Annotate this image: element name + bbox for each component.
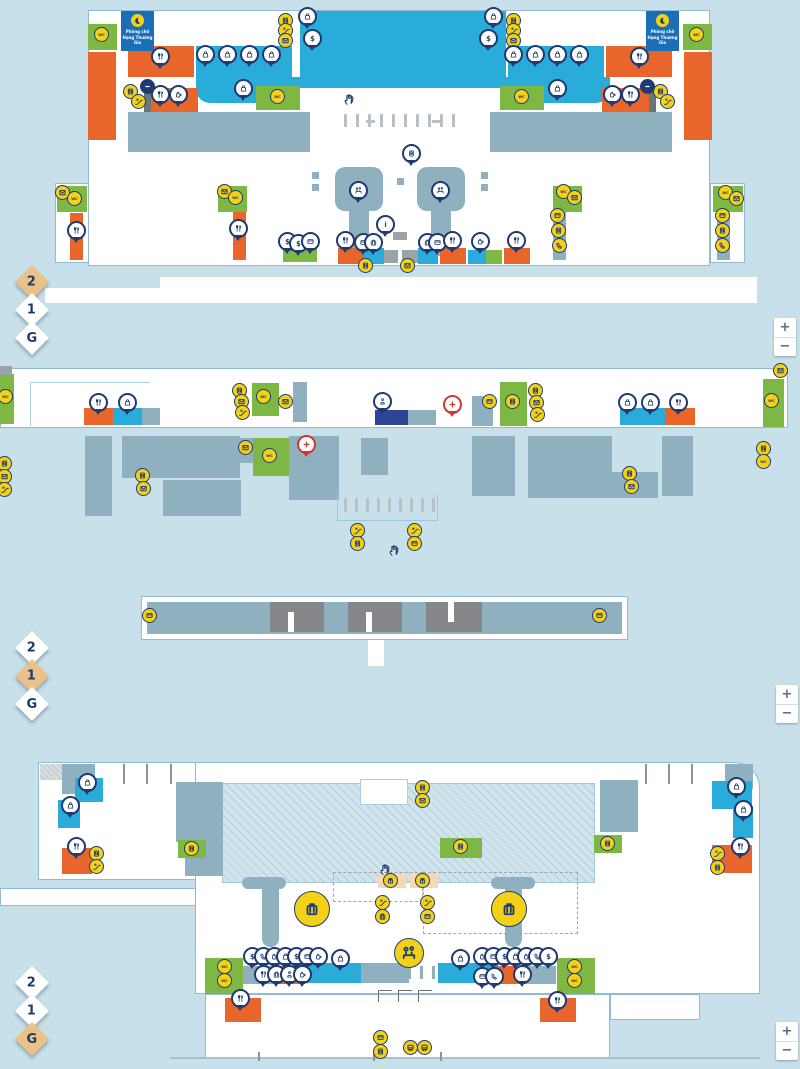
facility-badge-lift[interactable] [184,841,199,856]
poi-pin-bag[interactable] [218,45,237,64]
poi-pin-fork[interactable] [336,231,355,250]
facility-badge-mail[interactable] [278,33,293,48]
map-zone [176,782,223,814]
facility-badge-esc[interactable] [660,94,675,109]
facility-badge-wc[interactable] [764,393,779,408]
facility-badge-lift[interactable] [505,394,520,409]
map-zone [440,1052,442,1061]
facility-badge-mail[interactable] [400,258,415,273]
facility-badge-lug[interactable] [375,909,390,924]
poi-pin-fork[interactable] [67,221,86,240]
facility-badge-mail[interactable] [136,481,151,496]
facility-badge-card[interactable] [482,394,497,409]
poi-pin-fork[interactable] [630,47,649,66]
poi-pin-fork[interactable] [229,219,248,238]
zoom-control: + − [776,1022,798,1060]
map-zone [610,994,700,1020]
poi-pin-fork[interactable] [621,85,640,104]
area-marker-lug[interactable] [491,891,527,927]
map-zone [418,990,432,1002]
poi-pin-pass[interactable] [402,144,421,163]
facility-badge-mail[interactable] [729,191,744,206]
map-zone [691,764,693,784]
facility-badge-lift[interactable] [358,258,373,273]
zoom-control: + − [774,318,796,356]
poi-pin-coffee[interactable] [471,232,490,251]
map-zone [170,764,172,784]
facility-badge-mail[interactable] [624,479,639,494]
facility-badge-wc[interactable] [689,27,704,42]
zoom-out-button[interactable]: − [776,705,798,724]
poi-pin-dollar[interactable] [479,29,498,48]
map-zone [432,966,435,979]
poi-pin-fork[interactable] [151,85,170,104]
terminal-map-viewer: Phòng chờ Hạng Thương Gia Phòng chờ Hạng… [0,0,800,1069]
facility-badge-esc[interactable] [375,895,390,910]
facility-badge-lift[interactable] [551,223,566,238]
facility-badge-wc[interactable] [256,389,271,404]
facility-badge-lift[interactable] [600,836,615,851]
facility-badge-esc[interactable] [530,407,545,422]
zoom-in-button[interactable]: + [776,685,798,704]
floorG-map[interactable] [0,0,800,1069]
facility-badge-wc[interactable] [567,959,582,974]
poi-pin-fork[interactable] [548,991,567,1010]
poi-pin-bag[interactable] [451,949,470,968]
map-zone [384,966,387,979]
floor-button-label: 2 [27,274,36,289]
poi-pin-coffee[interactable] [309,947,328,966]
floor-button-label: G [27,1031,38,1046]
map-zone [222,783,595,883]
poi-pin-dollar[interactable] [539,947,558,966]
lounge-icon [131,14,144,27]
poi-pin-bag[interactable] [196,45,215,64]
map-zone [396,966,399,979]
poi-pin-fork[interactable] [513,965,532,984]
area-marker-lug[interactable] [294,891,330,927]
map-zone [262,889,279,947]
poi-pin-bag[interactable] [234,79,253,98]
zoom-out-button[interactable]: − [774,338,796,357]
poi-pin-fork[interactable] [89,393,108,412]
zoom-in-button[interactable]: + [774,318,796,337]
business-lounge-Phòng chờ Hạng Thương Gia: Phòng chờ Hạng Thương Gia [121,11,154,51]
facility-badge-esc[interactable] [131,94,146,109]
floor-button-label: 2 [27,640,36,655]
facility-badge-card[interactable] [420,909,435,924]
facility-badge-esc[interactable] [235,405,250,420]
map-zone [360,779,408,805]
map-zone [176,814,223,842]
map-zone [420,966,423,979]
floor-button-label: 1 [27,1003,36,1018]
poi-pin-bag[interactable] [618,393,637,412]
poi-pin-fork[interactable] [507,231,526,250]
facility-badge-mail[interactable] [415,793,430,808]
poi-pin-bag[interactable] [727,777,746,796]
facility-badge-wc[interactable] [270,89,285,104]
floor-button-label: G [27,330,38,345]
poi-pin-bag[interactable] [118,393,137,412]
map-zone [123,764,125,784]
facility-badge-wc[interactable] [756,454,771,469]
facility-badge-wc[interactable] [67,191,82,206]
poi-pin-med[interactable] [443,395,462,414]
map-zone [258,1052,260,1061]
area-marker-desk[interactable] [394,938,424,968]
poi-pin-fork[interactable] [231,989,250,1008]
facility-badge-mail[interactable] [238,440,253,455]
poi-pin-fork[interactable] [731,837,750,856]
poi-pin-med[interactable] [297,435,316,454]
poi-pin-bag[interactable] [641,393,660,412]
business-lounge-Phòng chờ Hạng Thương Gia: Phòng chờ Hạng Thương Gia [646,11,679,51]
pan-hand-icon [342,92,358,108]
poi-pin-card[interactable] [301,232,320,251]
facility-badge-lift[interactable] [715,223,730,238]
poi-pin-bag[interactable] [78,773,97,792]
lounge-label: Phòng chờ Hạng Thương Gia [121,29,154,46]
poi-pin-bag[interactable] [504,45,523,64]
facility-badge-card[interactable] [142,608,157,623]
poi-pin-dollar[interactable] [303,29,322,48]
floor-button-label: G [27,696,38,711]
facility-badge-no[interactable] [640,79,655,94]
facility-badge-mail[interactable] [278,394,293,409]
facility-badge-lift[interactable] [373,1044,388,1059]
floor-button-label: 1 [27,668,36,683]
facility-badge-card[interactable] [407,536,422,551]
pan-hand-icon [387,543,403,559]
map-zone [600,780,638,832]
map-zone [146,764,148,784]
poi-pin-bag[interactable] [331,949,350,968]
map-zone [206,840,223,858]
poi-pin-bag[interactable] [298,7,317,26]
poi-pin-bag[interactable] [548,45,567,64]
poi-pin-bag[interactable] [262,45,281,64]
facility-badge-gift[interactable] [415,873,430,888]
lounge-label: Phòng chờ Hạng Thương Gia [646,29,679,46]
poi-pin-desk[interactable] [349,181,368,200]
facility-badge-lift[interactable] [710,860,725,875]
facility-badge-wc[interactable] [217,959,232,974]
map-zone [378,990,392,1002]
facility-badge-bus[interactable] [403,1040,418,1055]
poi-pin-coffee[interactable] [293,965,312,984]
zoom-in-button[interactable]: + [776,1022,798,1041]
poi-pin-bag[interactable] [570,45,589,64]
facility-badge-lift[interactable] [453,839,468,854]
poi-pin-bag[interactable] [240,45,259,64]
zoom-out-button[interactable]: − [776,1042,798,1061]
poi-pin-bag[interactable] [548,79,567,98]
poi-pin-coffee[interactable] [169,85,188,104]
facility-badge-card[interactable] [592,608,607,623]
floor-button-label: 1 [27,302,36,317]
facility-badge-phone[interactable] [552,238,567,253]
pan-hand-icon [378,862,394,878]
zoom-control: + − [776,685,798,723]
facility-badge-esc[interactable] [420,895,435,910]
map-zone [398,990,412,1002]
map-zone [185,858,223,876]
poi-pin-fork[interactable] [669,393,688,412]
map-zone [668,764,670,784]
poi-pin-phone[interactable] [485,967,504,986]
poi-pin-lug[interactable] [364,233,383,252]
poi-pin-bag[interactable] [734,800,753,819]
poi-pin-info[interactable] [376,215,395,234]
facility-badge-wc[interactable] [514,89,529,104]
poi-pin-person[interactable] [373,392,392,411]
floor-button-label: 2 [27,975,36,990]
facility-badge-lift[interactable] [350,536,365,551]
facility-badge-wc[interactable] [567,973,582,988]
poi-pin-fork[interactable] [151,47,170,66]
poi-pin-coffee[interactable] [603,85,622,104]
poi-pin-desk[interactable] [431,181,450,200]
facility-badge-esc[interactable] [710,846,725,861]
facility-badge-wc[interactable] [228,190,243,205]
poi-pin-fork[interactable] [443,231,462,250]
poi-pin-bag[interactable] [61,796,80,815]
facility-badge-esc[interactable] [89,859,104,874]
facility-badge-card[interactable] [550,208,565,223]
facility-badge-card[interactable] [373,1030,388,1045]
facility-badge-wc[interactable] [217,973,232,988]
lounge-icon [656,14,669,27]
facility-badge-wc[interactable] [94,27,109,42]
poi-pin-bag[interactable] [526,45,545,64]
facility-badge-wc[interactable] [262,448,277,463]
poi-pin-bag[interactable] [484,7,503,26]
map-zone [242,877,286,889]
map-zone [645,764,647,784]
facility-badge-card[interactable] [715,208,730,223]
map-zone [0,888,218,906]
poi-pin-fork[interactable] [67,837,86,856]
facility-badge-bus[interactable] [417,1040,432,1055]
facility-badge-mail[interactable] [567,190,582,205]
facility-badge-phone[interactable] [715,238,730,253]
facility-badge-mail[interactable] [773,363,788,378]
